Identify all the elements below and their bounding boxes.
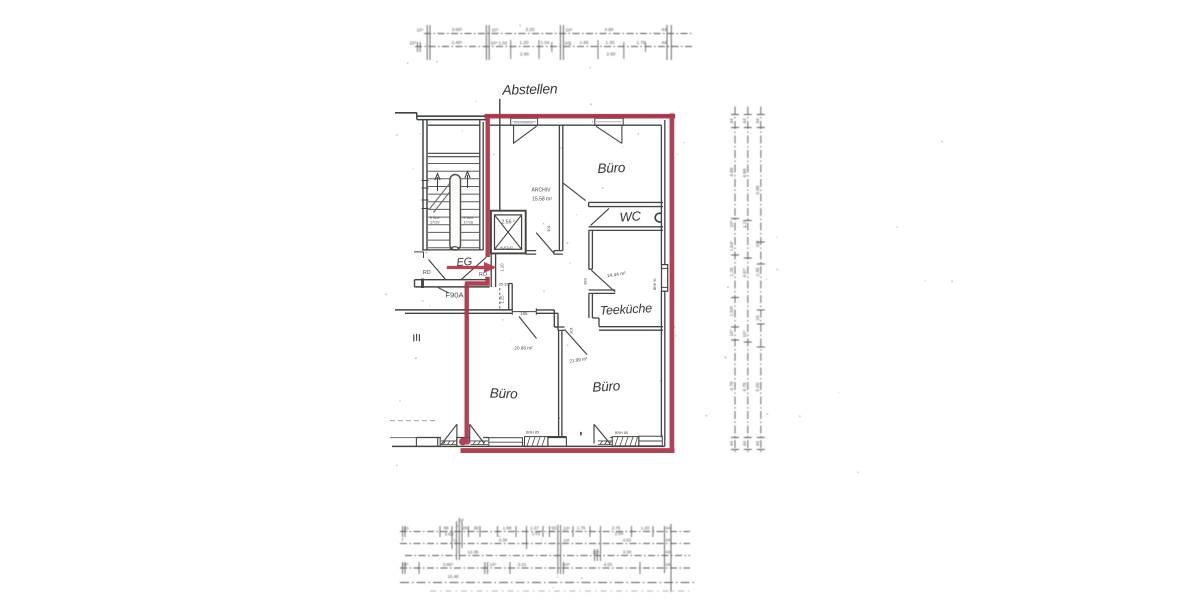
svg-text:2.56 ²: 2.56 ² (501, 220, 515, 226)
svg-text:44: 44 (729, 441, 734, 447)
svg-text:2.75: 2.75 (612, 525, 621, 530)
svg-text:4.67: 4.67 (742, 268, 747, 277)
svg-text:2.60: 2.60 (607, 51, 616, 56)
svg-text:4.68: 4.68 (742, 168, 747, 177)
svg-text:RO: RO (479, 272, 487, 278)
svg-text:15.48: 15.48 (448, 574, 460, 579)
svg-text:5.55: 5.55 (755, 382, 760, 391)
svg-text:KASTENFENST: KASTENFENST (514, 121, 534, 125)
svg-text:1.75: 1.75 (577, 525, 586, 530)
svg-text:99: 99 (444, 525, 449, 530)
svg-text:301: 301 (546, 224, 551, 231)
svg-text:44: 44 (742, 441, 747, 447)
svg-text:1.15: 1.15 (499, 295, 504, 304)
svg-text:10⁵: 10⁵ (729, 220, 734, 227)
svg-text:1.75: 1.75 (637, 40, 646, 45)
svg-text:4.62: 4.62 (623, 537, 632, 542)
svg-text:1.20: 1.20 (641, 525, 650, 530)
svg-text:BRH 85: BRH 85 (615, 431, 628, 435)
svg-text:4.78: 4.78 (742, 382, 747, 391)
svg-text:1.2⁵: 1.2⁵ (742, 220, 747, 228)
svg-text:44: 44 (666, 525, 671, 530)
svg-text:17/28: 17/28 (463, 221, 473, 225)
svg-text:20.88 m²: 20.88 m² (514, 346, 533, 351)
svg-text:4.78: 4.78 (729, 381, 734, 390)
svg-text:4.60: 4.60 (605, 27, 614, 32)
svg-text:38: 38 (474, 525, 479, 530)
svg-text:F90A: F90A (445, 291, 464, 300)
svg-text:2.60: 2.60 (520, 51, 529, 56)
svg-text:301: 301 (569, 326, 574, 333)
svg-text:10⁵: 10⁵ (755, 240, 760, 247)
svg-text:Büro: Büro (592, 378, 621, 394)
svg-text:Abstellen: Abstellen (501, 81, 558, 97)
svg-text:10⁵: 10⁵ (402, 562, 409, 567)
svg-text:BRH 90: BRH 90 (653, 278, 657, 290)
svg-text:2.64: 2.64 (615, 531, 624, 536)
svg-text:4.36: 4.36 (499, 537, 508, 542)
svg-text:4.00: 4.00 (604, 562, 613, 567)
svg-text:WC: WC (619, 208, 642, 225)
svg-text:1.01: 1.01 (532, 531, 541, 536)
svg-text:20: 20 (404, 526, 409, 531)
svg-text:17/29: 17/29 (430, 221, 440, 225)
svg-text:10⁵: 10⁵ (490, 562, 497, 567)
svg-text:3.30: 3.30 (623, 549, 632, 554)
svg-text:105: 105 (521, 311, 529, 316)
svg-text:10⁵: 10⁵ (409, 41, 416, 46)
svg-text:25: 25 (463, 525, 468, 530)
svg-text:RD: RD (423, 270, 431, 276)
svg-text:BRH 85: BRH 85 (526, 430, 539, 434)
svg-text:3.66⁵: 3.66⁵ (443, 562, 454, 567)
svg-text:1.20: 1.20 (520, 40, 529, 45)
svg-text:1.10: 1.10 (500, 263, 505, 272)
svg-text:4.66: 4.66 (729, 167, 734, 176)
svg-text:1.64⁵: 1.64⁵ (729, 240, 734, 251)
svg-text:1.02: 1.02 (499, 40, 508, 45)
svg-text:1.98: 1.98 (503, 525, 512, 530)
svg-text:20: 20 (755, 315, 760, 321)
svg-text:383: 383 (582, 277, 587, 284)
svg-text:Teeküche: Teeküche (599, 301, 652, 318)
svg-text:1.26: 1.26 (729, 267, 734, 276)
svg-text:10⁵: 10⁵ (742, 330, 747, 337)
svg-text:1.65: 1.65 (580, 40, 589, 45)
svg-text:3.66⁵: 3.66⁵ (452, 27, 463, 32)
svg-text:44: 44 (661, 40, 667, 45)
svg-text:10⁵: 10⁵ (565, 28, 572, 33)
svg-text:10⁵: 10⁵ (729, 329, 734, 336)
svg-text:44: 44 (666, 549, 671, 554)
svg-text:10⁵: 10⁵ (490, 41, 497, 46)
svg-text:5.68: 5.68 (755, 185, 760, 194)
svg-text:10⁵: 10⁵ (564, 41, 571, 46)
svg-text:44: 44 (755, 441, 760, 447)
svg-text:2.63: 2.63 (445, 531, 454, 536)
svg-text:1.04: 1.04 (541, 40, 550, 45)
svg-text:ARCHIV: ARCHIV (532, 188, 552, 194)
svg-text:Büro: Büro (597, 160, 626, 176)
svg-text:44: 44 (729, 118, 734, 124)
svg-text:35·35: 35·35 (499, 283, 509, 287)
svg-text:10⁵: 10⁵ (416, 28, 423, 33)
svg-text:44: 44 (666, 537, 671, 542)
svg-text:9 StG: 9 StG (463, 216, 473, 220)
svg-text:EG: EG (456, 256, 473, 269)
svg-text:44: 44 (742, 118, 747, 124)
svg-text:10⁵: 10⁵ (458, 518, 464, 523)
svg-text:1.30: 1.30 (606, 40, 615, 45)
svg-text:9 StG: 9 StG (430, 216, 440, 220)
svg-text:44: 44 (666, 562, 671, 567)
svg-text:1.37: 1.37 (530, 525, 539, 530)
svg-text:Büro: Büro (490, 386, 519, 402)
svg-text:15.58 m²: 15.58 m² (532, 197, 552, 203)
svg-text:10⁵: 10⁵ (563, 538, 570, 543)
svg-text:10⁵: 10⁵ (491, 28, 498, 33)
svg-text:12.36: 12.36 (468, 549, 480, 554)
svg-text:2.45: 2.45 (755, 267, 760, 276)
svg-text:3.20: 3.20 (526, 27, 535, 32)
svg-text:AUFZUG: AUFZUG (500, 246, 513, 250)
svg-text:44: 44 (755, 118, 760, 124)
svg-text:55: 55 (552, 525, 557, 530)
svg-text:2.46⁵: 2.46⁵ (452, 40, 463, 45)
svg-text:10⁵: 10⁵ (563, 526, 570, 531)
svg-text:10⁵: 10⁵ (563, 562, 570, 567)
svg-text:10⁵: 10⁵ (593, 550, 600, 555)
svg-text:3.21: 3.21 (518, 562, 527, 567)
svg-text:44: 44 (661, 27, 667, 32)
svg-text:1.59⁵: 1.59⁵ (729, 305, 734, 316)
